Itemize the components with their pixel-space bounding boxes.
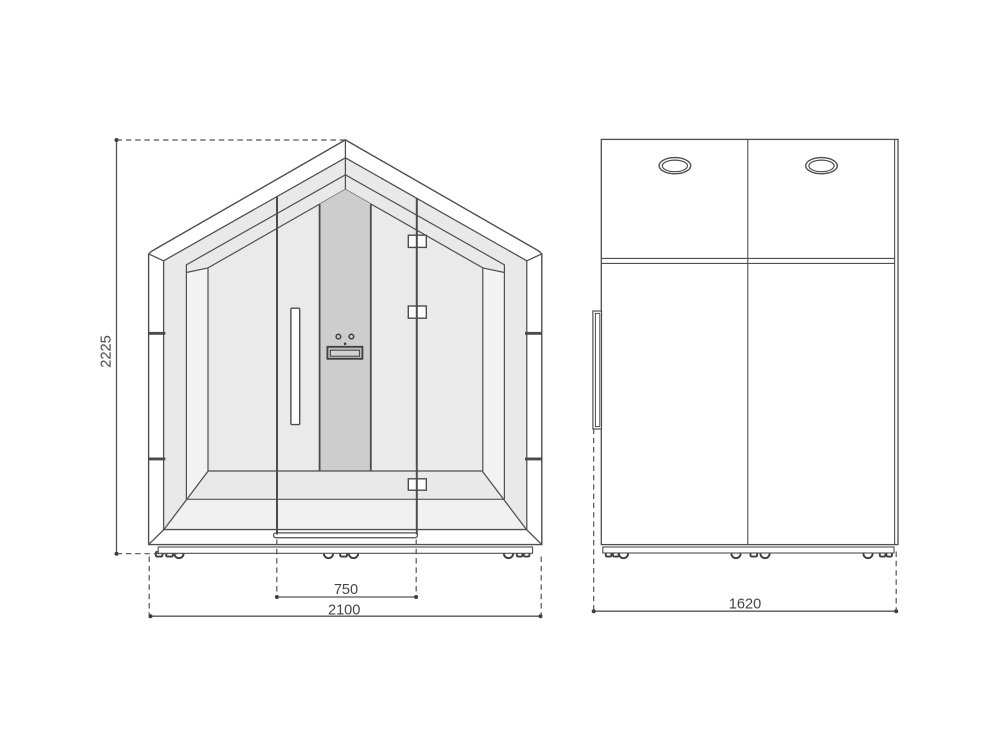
svg-text:750: 750 bbox=[334, 582, 358, 598]
svg-text:2225: 2225 bbox=[99, 335, 115, 367]
svg-text:2100: 2100 bbox=[328, 602, 360, 618]
svg-text:1620: 1620 bbox=[729, 596, 761, 612]
